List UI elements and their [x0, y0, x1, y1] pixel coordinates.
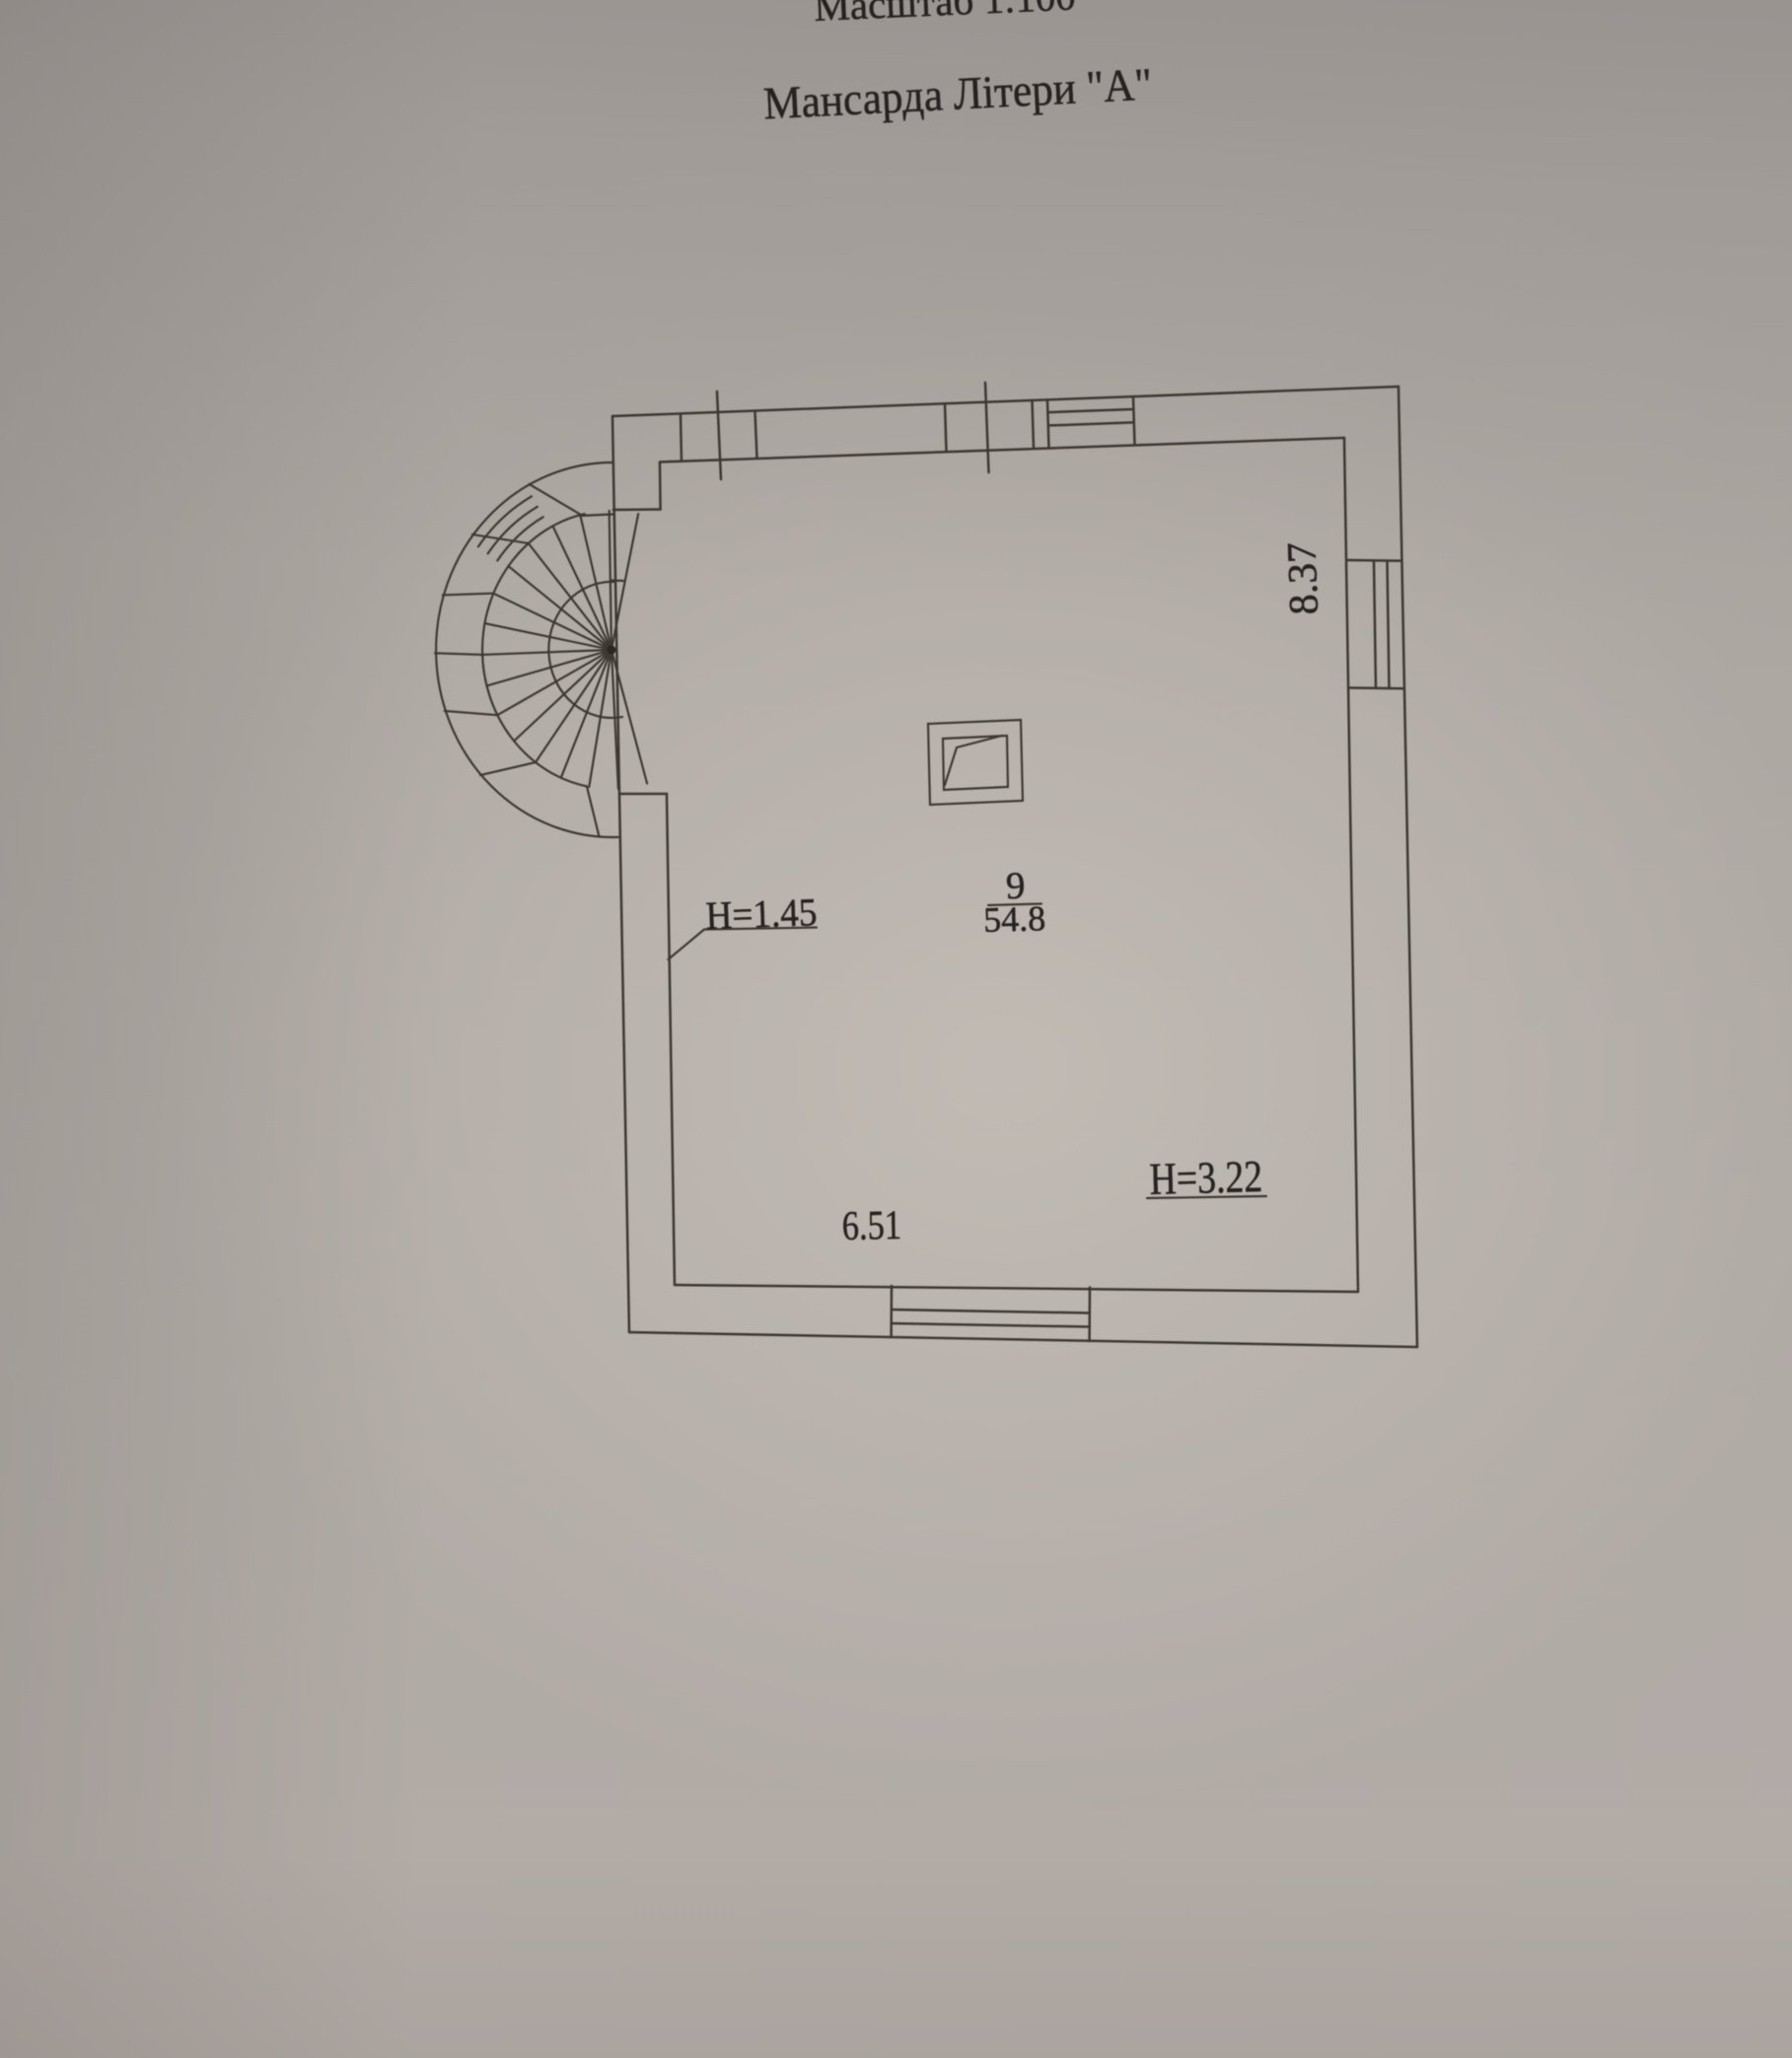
svg-text:H=1.45: H=1.45 [705, 891, 818, 938]
svg-text:8.37: 8.37 [1279, 541, 1327, 615]
svg-text:H=3.22: H=3.22 [1149, 1153, 1263, 1205]
svg-text:6.51: 6.51 [841, 1203, 901, 1249]
svg-text:Масштаб 1:100: Масштаб 1:100 [813, 0, 1076, 30]
svg-text:Мансарда Літери "А": Мансарда Літери "А" [762, 58, 1153, 129]
svg-text:54.8: 54.8 [983, 898, 1046, 940]
